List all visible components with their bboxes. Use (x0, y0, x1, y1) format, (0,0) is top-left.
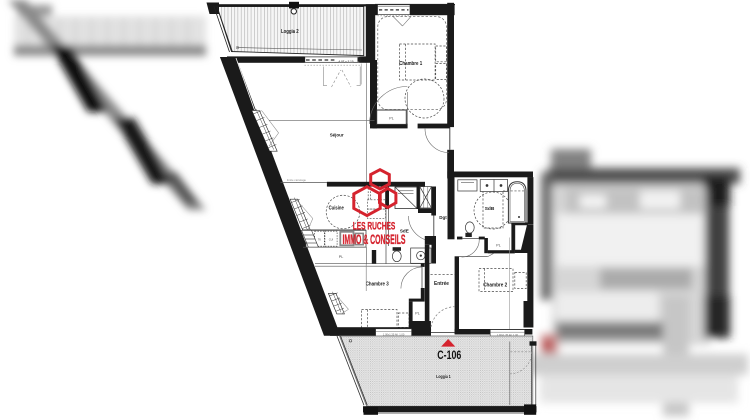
svg-text:TK: TK (318, 237, 322, 241)
svg-text:Entrée: Entrée (434, 281, 449, 287)
svg-text:CUI: CUI (329, 237, 334, 241)
svg-text:SdB: SdB (485, 206, 495, 212)
svg-text:limite carrelage: limite carrelage (287, 178, 306, 182)
svg-text:IMMO & CONSEILS: IMMO & CONSEILS (343, 232, 406, 247)
svg-text:PL: PL (496, 244, 500, 248)
svg-text:LES RUCHES: LES RUCHES (353, 220, 396, 232)
svg-text:4.07 x 2.15: 4.07 x 2.15 (339, 59, 354, 63)
svg-text:Loggia 1: Loggia 1 (436, 374, 451, 380)
svg-text:Chambre 2: Chambre 2 (483, 283, 507, 289)
svg-text:Cuisine: Cuisine (329, 205, 344, 211)
svg-text:Dgt: Dgt (439, 215, 447, 220)
svg-text:Chambre 1: Chambre 1 (399, 61, 423, 67)
svg-text:PL: PL (339, 255, 343, 259)
svg-text:Loggia 2: Loggia 2 (281, 29, 299, 35)
svg-text:C-106: C-106 (437, 350, 461, 362)
svg-text:Chambre 3: Chambre 3 (366, 282, 390, 288)
svg-text:PL: PL (389, 117, 393, 121)
svg-text:PL: PL (415, 312, 419, 316)
svg-text:Séjour: Séjour (330, 132, 344, 138)
